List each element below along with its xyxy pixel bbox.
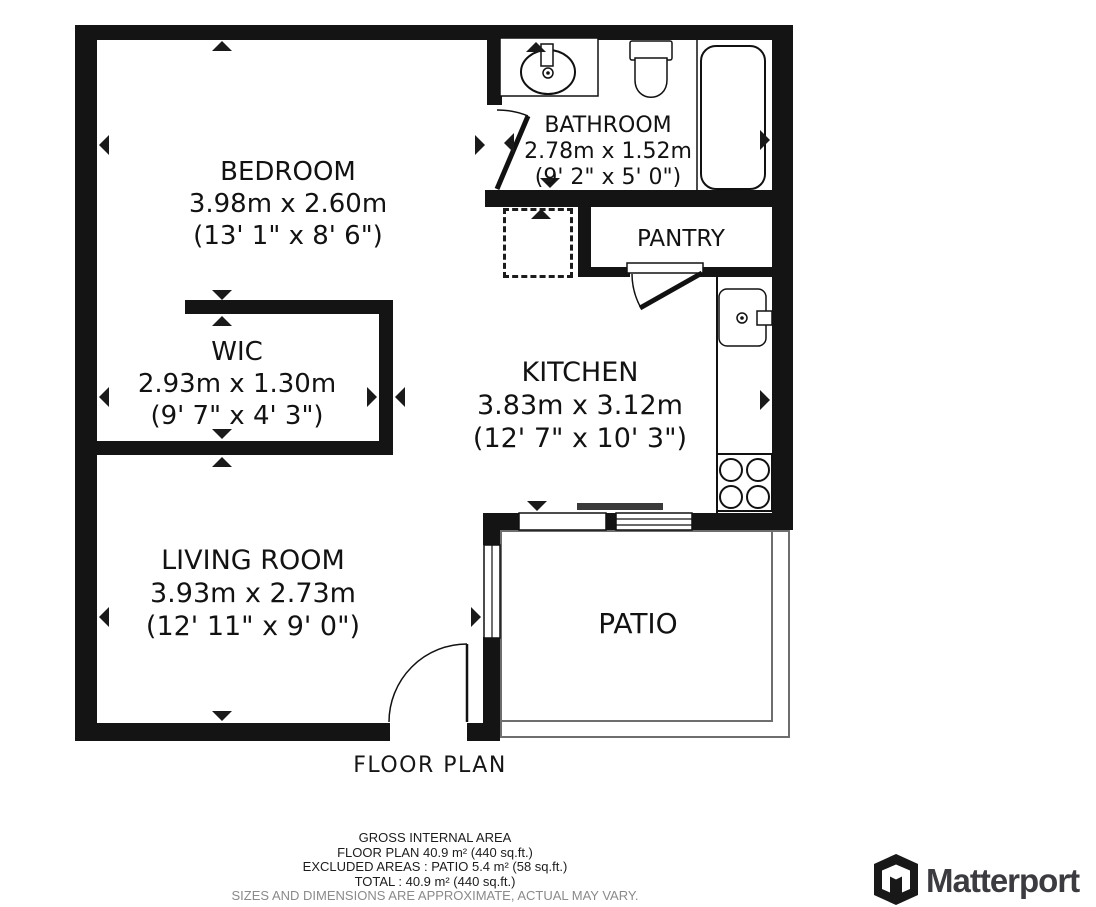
floor-plan-page: BEDROOM 3.98m x 2.60m (13' 1" x 8' 6") B… [0, 0, 1096, 907]
measure-arrow-bedroom-top [212, 41, 232, 51]
toilet [630, 41, 672, 97]
plan-title: FLOOR PLAN [280, 753, 580, 778]
living-room-imperial: (12' 11" x 9' 0") [103, 610, 403, 643]
total-area: TOTAL : 40.9 m² (440 sq.ft.) [150, 875, 720, 890]
measure-arrow-bathroom-top [526, 42, 546, 52]
measure-arrow-living-right [471, 607, 481, 627]
bathroom-imperial: (9' 2" x 5' 0") [498, 165, 718, 191]
bathroom-metric: 2.78m x 1.52m [498, 139, 718, 165]
patio-name: PATIO [558, 608, 718, 640]
matterport-branding: Matterport [872, 854, 1096, 906]
kitchen-window [519, 513, 606, 530]
kitchen-sink [719, 289, 772, 346]
room-label-bedroom: BEDROOM 3.98m x 2.60m (13' 1" x 8' 6") [138, 156, 438, 252]
measure-arrow-kitchen-left [395, 387, 405, 407]
measure-arrow-living-top [212, 457, 232, 467]
room-label-kitchen: KITCHEN 3.83m x 3.12m (12' 7" x 10' 3") [430, 356, 730, 455]
matterport-logo-icon [872, 854, 920, 906]
room-label-living-room: LIVING ROOM 3.93m x 2.73m (12' 11" x 9' … [103, 544, 403, 643]
bedroom-imperial: (13' 1" x 8' 6") [138, 220, 438, 252]
measure-arrow-kitchen-bottom [527, 501, 547, 511]
kitchen-metric: 3.83m x 3.12m [430, 389, 730, 422]
entry-door [389, 644, 467, 722]
kitchen-imperial: (12' 7" x 10' 3") [430, 422, 730, 455]
gross-internal-area-heading: GROSS INTERNAL AREA [150, 831, 720, 846]
wic-metric: 2.93m x 1.30m [97, 368, 377, 400]
room-label-wic: WIC 2.93m x 1.30m (9' 7" x 4' 3") [97, 336, 377, 432]
kitchen-name: KITCHEN [430, 356, 730, 389]
wic-name: WIC [97, 336, 377, 368]
pantry-door [627, 263, 703, 308]
excluded-areas: EXCLUDED AREAS : PATIO 5.4 m² (58 sq.ft.… [150, 860, 720, 875]
room-label-pantry: PANTRY [601, 226, 761, 253]
area-summary: GROSS INTERNAL AREA FLOOR PLAN 40.9 m² (… [150, 831, 720, 904]
bathroom-sink [500, 38, 598, 96]
room-label-bathroom: BATHROOM 2.78m x 1.52m (9' 2" x 5' 0") [498, 113, 718, 191]
bathroom-name: BATHROOM [498, 113, 718, 139]
measure-arrow-kitchen-top [531, 209, 551, 219]
measure-arrow-bedroom-bottom [212, 290, 232, 300]
measure-arrow-living-bottom [212, 711, 232, 721]
living-room-name: LIVING ROOM [103, 544, 403, 577]
bedroom-metric: 3.98m x 2.60m [138, 188, 438, 220]
measure-arrow-wic-top [212, 316, 232, 326]
pantry-name: PANTRY [601, 226, 761, 253]
measure-arrow-bedroom-right [475, 135, 485, 155]
measure-arrow-bathroom-right [760, 130, 770, 150]
floor-plan-area: FLOOR PLAN 40.9 m² (440 sq.ft.) [150, 846, 720, 861]
wic-imperial: (9' 7" x 4' 3") [97, 400, 377, 432]
measure-arrow-bedroom-left [99, 135, 109, 155]
measure-arrow-kitchen-right [760, 390, 770, 410]
bedroom-name: BEDROOM [138, 156, 438, 188]
living-room-metric: 3.93m x 2.73m [103, 577, 403, 610]
disclaimer-text: SIZES AND DIMENSIONS ARE APPROXIMATE, AC… [150, 889, 720, 904]
matterport-logo-text: Matterport [926, 862, 1079, 900]
stove [717, 454, 772, 511]
room-label-patio: PATIO [558, 608, 718, 640]
living-room-window [484, 545, 500, 638]
